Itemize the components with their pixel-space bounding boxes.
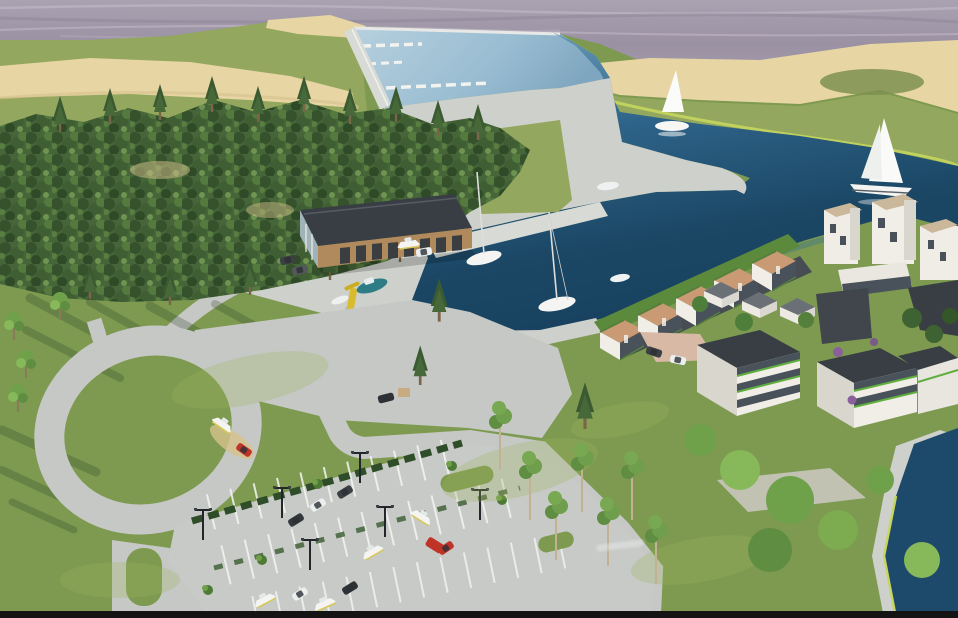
tall-tree	[621, 451, 644, 520]
forest-clearing	[130, 161, 190, 179]
leafy-tree	[720, 450, 760, 490]
purple-plant	[870, 338, 878, 346]
canal	[872, 428, 958, 618]
purple-plant	[833, 347, 843, 357]
marina-rendering	[0, 0, 958, 618]
forest-clearing	[246, 202, 294, 218]
palm-tree	[692, 296, 708, 312]
white-tower	[920, 219, 958, 280]
leafy-tree	[818, 510, 858, 550]
palm-tree	[735, 313, 753, 331]
dark-tree	[942, 308, 958, 324]
dark-roof-block	[816, 288, 872, 344]
road-stub	[94, 320, 104, 352]
dark-tree	[925, 325, 943, 343]
kiosk-crate	[398, 388, 410, 397]
white-tower	[824, 203, 862, 264]
dark-tree	[902, 308, 922, 328]
leafy-tree	[766, 476, 814, 524]
purple-plant	[848, 396, 857, 405]
leafy-tree	[904, 542, 940, 578]
leafy-tree	[4, 312, 24, 340]
leafy-tree	[8, 384, 28, 412]
leafy-tree	[684, 424, 716, 456]
letterbox-bar	[0, 611, 958, 618]
rendering-canvas	[0, 0, 958, 618]
grass-patch	[60, 562, 180, 598]
apartment-block-d	[817, 348, 917, 428]
apartment-block-c	[697, 330, 800, 416]
white-tower	[872, 194, 918, 264]
leafy-tree	[748, 528, 792, 572]
grass-mound	[820, 69, 924, 95]
leafy-tree	[16, 350, 36, 378]
pontoon-dock	[368, 62, 404, 64]
palm-tree	[798, 312, 814, 328]
leafy-tree	[866, 466, 894, 494]
